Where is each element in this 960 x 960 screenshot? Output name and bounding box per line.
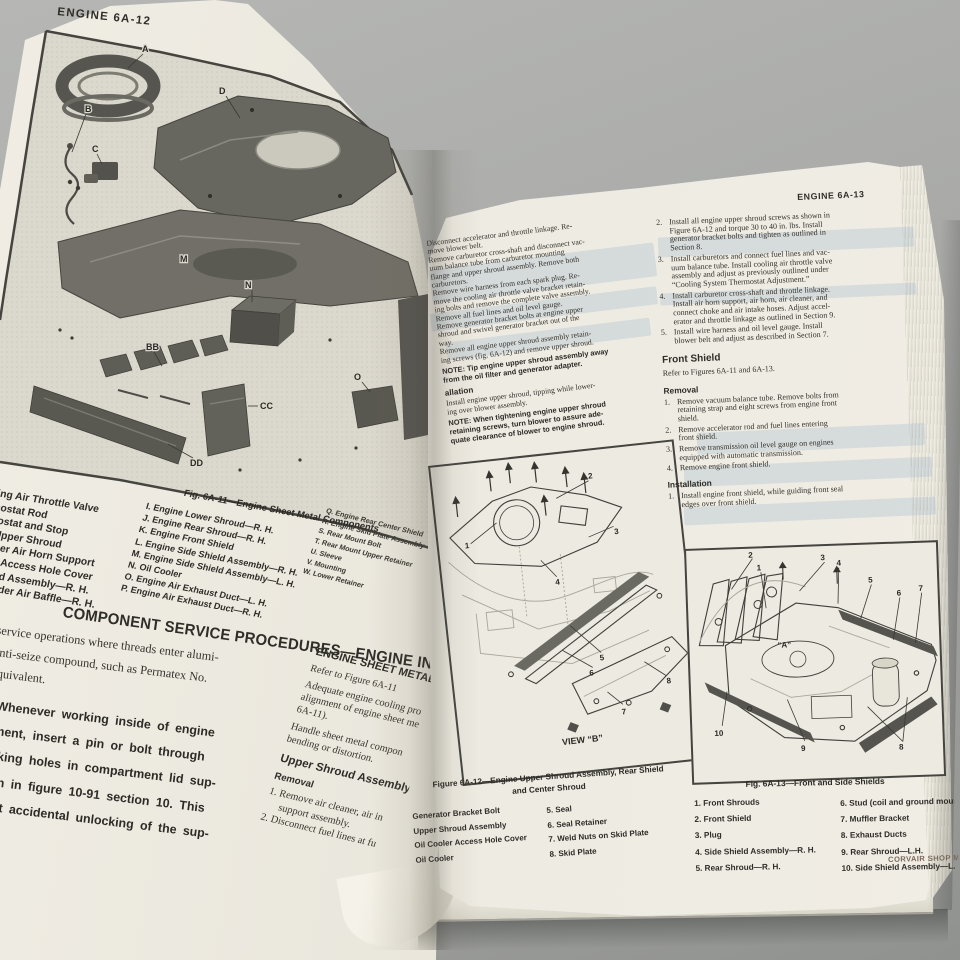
manual-photo: ENGINE 6A-12 [0,0,960,960]
fig13-callout-7: 7 [918,584,923,593]
fig11-label-n: N [245,280,252,290]
fig11-label-dd: DD [190,458,203,468]
front-shroud-fan [697,573,807,647]
fig-6a11-illustration: A B C D M N BB CC DD O [0,0,460,570]
fig12-callout-3: 3 [614,527,620,536]
item-number: 1. [664,398,678,425]
fig12-callout-8: 8 [666,676,672,685]
fig13-callout-5: 5 [868,575,873,584]
right-column: 2. Install all engine upper shroud screw… [656,207,949,513]
fig-6a12-illustration: 1 2 3 4 5 6 7 8 VIEW “B” [430,442,706,784]
fig-6a13-box: 1 2 3 4 5 6 7 8 9 10 “A” [684,540,946,785]
fig13-callout-2: 2 [748,551,753,560]
fig12-callout-7: 7 [621,707,627,716]
fig11-label-b: B [85,104,92,114]
item-number: 5. [661,329,675,347]
fig13-callout-3: 3 [820,553,825,562]
fig12-callout-5: 5 [599,653,605,662]
mount-bolts [742,558,920,733]
fig13-callout-8: 8 [899,742,904,751]
fig13-callout-4: 4 [836,559,841,568]
fig11-label-a: A [142,44,149,54]
item-number: 4. [667,465,680,474]
fig12-callout-4: 4 [555,577,561,586]
fig12-callout-1: 1 [464,541,470,550]
fig11-label-bb: BB [146,342,159,352]
fig13-callout-1: 1 [757,563,762,572]
part-oil-cooler [230,296,296,346]
fig13-callout-9: 9 [801,744,806,753]
legend-line: 4. Side Shield Assembly—R. H. [695,842,816,861]
oil-filter [872,658,900,707]
fig12-callout-2: 2 [588,471,594,480]
text-line: Remove engine front shield. [680,461,771,474]
fig12-view-label: VIEW “B” [562,733,604,747]
retaining-screws [450,455,591,525]
left-paragraph-bold: Whenever working inside of engine ment, … [0,694,223,847]
fig12-legend-col2: 5. Seal 6. Seal Retainer 7. Weld Nuts on… [546,797,650,862]
fig11-label-c: C [92,144,99,154]
fig13-legend-col1: 1. Front Shrouds 2. Front Shield 3. Plug… [694,793,816,877]
part-exhaust-duct [352,386,398,428]
legend-line: 6. Stud (coil and ground mounting [840,794,954,813]
part-side-shield [202,384,250,456]
item-number: 3. [666,445,680,463]
fig11-label-cc: CC [260,401,273,411]
engine-understructure [448,533,662,676]
fig11-label-o: O [354,372,361,382]
side-shield-strips [702,606,941,758]
footer-shop-manual: CORVAIR SHOP MA [888,853,958,864]
fig13-view-a-label: “A” [777,640,791,649]
item-number: 2. [665,426,679,444]
fig11-label-m: M [180,254,188,264]
middle-column: Disconnect accelerator and throttle link… [426,211,688,446]
fig11-label-d: D [219,86,226,96]
fig12-legend-col1: Generator Bracket Bolt Upper Shroud Asse… [412,801,544,868]
fig13-callout-10: 10 [714,729,724,738]
seal-rails [499,570,670,687]
fig-6a13-illustration: 1 2 3 4 5 6 7 8 9 10 “A” [686,542,944,783]
fig13-legend-col2: 6. Stud (coil and ground mounting 7. Muf… [840,794,956,877]
legend-line: 5. Rear Shroud—R. H. [695,858,816,877]
item-number: 1. [668,492,682,510]
fig13-callout-6: 6 [897,588,902,597]
fig-6a12-box: 1 2 3 4 5 6 7 8 VIEW “B” [428,439,708,786]
upper-shroud-outline [445,478,627,576]
